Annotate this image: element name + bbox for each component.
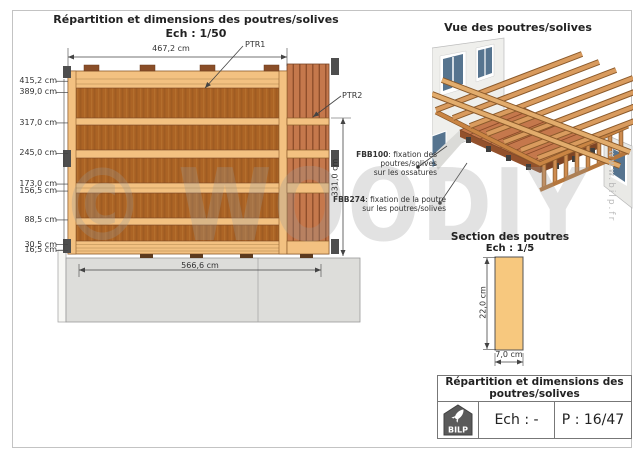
title-block-scale: Ech : - <box>479 402 555 438</box>
fbb274-name: FBB274 <box>333 195 365 204</box>
section-scale: Ech : 1/5 <box>420 243 600 254</box>
title-block-line2: poutres/solives <box>438 389 631 401</box>
fbb274-line1: : fixation de la poutre <box>365 195 446 204</box>
left-dim-label: 415,2 cm <box>19 76 57 86</box>
section-title: Section des poutres <box>420 231 600 243</box>
ptr1-label: PTR1 <box>245 40 265 49</box>
fbb100-line2: poutres/solives <box>327 159 437 168</box>
fbb100-callout: FBB100: fixation des poutres/solives sur… <box>327 150 437 177</box>
beam-section-rect <box>495 257 523 350</box>
site-url-vertical: www.bilp.fr <box>606 150 616 280</box>
left-dim-label: 389,0 cm <box>19 87 57 97</box>
logo-cell: BILP <box>438 402 479 438</box>
title-block: Répartition et dimensions des poutres/so… <box>437 375 632 439</box>
vertical-plank-section <box>287 64 329 254</box>
elevation-title: Répartition et dimensions des poutres/so… <box>26 13 366 26</box>
joist-end-tabs <box>84 65 279 71</box>
title-block-line1: Répartition et dimensions des <box>438 377 631 389</box>
bilp-logo-text: BILP <box>448 426 468 435</box>
view3d-title: Vue des poutres/solives <box>418 21 618 34</box>
left-dim-label: 156,5 cm <box>19 186 57 196</box>
fbb100-line3: sur les ossatures <box>327 168 437 177</box>
fbb100-line1: : fixation des <box>388 150 437 159</box>
section-width-dim-label: 7,0 cm <box>481 350 537 359</box>
elevation-scale: Ech : 1/50 <box>26 27 366 40</box>
base-pads <box>140 254 313 258</box>
left-dim-label: 317,0 cm <box>19 118 57 128</box>
section-height-dim-label: 22,0 cm <box>479 275 488 331</box>
bottom-width-dim-label: 566,6 cm <box>79 261 321 270</box>
left-dim-label: 245,0 cm <box>19 148 57 158</box>
joist-panels <box>76 88 279 241</box>
fbb274-callout: FBB274: fixation de la poutre sur les po… <box>327 195 446 213</box>
left-dim-labels: 415,2 cm389,0 cm317,0 cm245,0 cm173,0 cm… <box>0 0 57 452</box>
ptr2-label: PTR2 <box>342 91 362 100</box>
fbb274-line2: sur les poutres/solives <box>327 204 446 213</box>
right-post <box>279 71 287 254</box>
elevation-drawing <box>58 58 360 322</box>
left-dim-label: 16,5 cm <box>24 245 57 255</box>
plan-page: © WOODIY www.bilp.fr Répartition et dime… <box>0 0 640 452</box>
left-dim-label: 88,5 cm <box>24 215 57 225</box>
fbb100-name: FBB100 <box>356 150 388 159</box>
title-block-title: Répartition et dimensions des poutres/so… <box>438 376 631 402</box>
base-left-wall <box>58 250 66 322</box>
bilp-logo-icon: BILP <box>443 404 473 436</box>
title-block-page: P : 16/47 <box>555 402 631 438</box>
